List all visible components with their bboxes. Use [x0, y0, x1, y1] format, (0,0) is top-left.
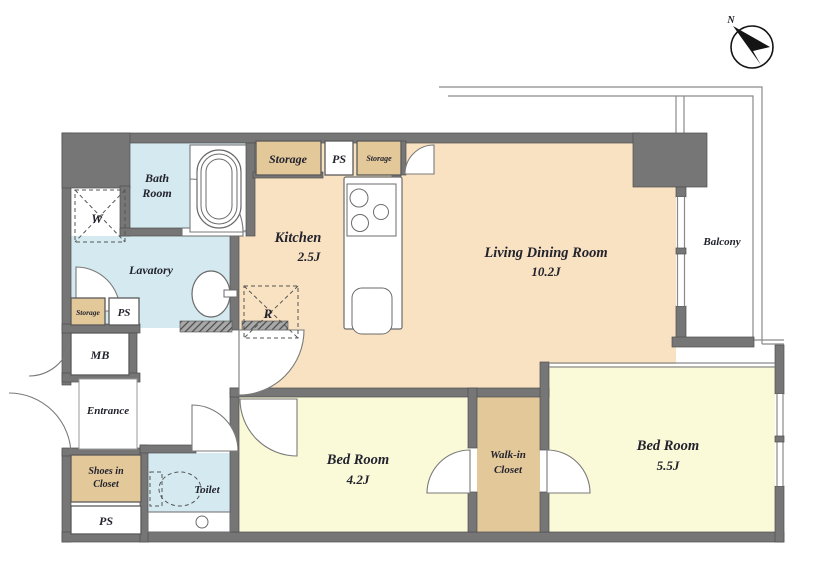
mb-label: MB — [90, 348, 110, 362]
fridge-label: R — [263, 306, 273, 321]
toilet-label: Toilet — [194, 484, 220, 496]
wall-east-below-pillar — [676, 187, 686, 197]
floor-plan: N Bath Room Lavatory W R Storage PS MB E… — [0, 0, 832, 574]
wall-bottom — [62, 532, 784, 542]
wall-walkin-left-upper — [468, 388, 477, 448]
bedroom-small-label: Bed Room — [326, 452, 389, 468]
balcony-label: Balcony — [702, 236, 740, 248]
floors — [71, 143, 775, 533]
entrance-door-arc-lower — [9, 393, 71, 455]
wall-right-upper — [775, 345, 784, 394]
entrance-label: Entrance — [86, 405, 129, 417]
north-arrow-icon — [733, 26, 770, 65]
bathtub-inner — [206, 159, 232, 219]
bedroom-small-size-label: 4.2J — [346, 472, 370, 487]
wall-bedroom-small-left — [230, 388, 239, 532]
wall-bath-kitchen — [246, 143, 255, 236]
storage-top-label: Storage — [269, 152, 308, 166]
toilet-counter — [148, 512, 230, 532]
ps-side-label: PS — [118, 307, 131, 319]
wall-walkin-right-lower — [540, 492, 549, 532]
wall-right-lower — [775, 486, 784, 542]
floor-plan-canvas: N Bath Room Lavatory W R Storage PS MB E… — [0, 0, 832, 574]
ps-top-label: PS — [332, 152, 346, 166]
wall-bath-bottom — [120, 228, 182, 236]
wall-toilet-top — [140, 445, 196, 453]
storage-side-label: Storage — [76, 308, 100, 317]
lavatory-step-hatch — [180, 321, 232, 332]
living-dining-label: Living Dining Room — [483, 245, 607, 261]
shoes-closet-label-2: Closet — [93, 479, 120, 490]
kitchen-size-label: 2.5J — [297, 249, 321, 264]
stove-burner-2 — [374, 205, 389, 220]
bath-room-label-2: Room — [141, 186, 171, 200]
kitchen-label: Kitchen — [274, 230, 322, 246]
lavatory-label: Lavatory — [128, 263, 174, 277]
lavatory-faucet — [224, 290, 237, 297]
walkin-closet-label-2: Closet — [494, 464, 523, 476]
living-dining-size-label: 10.2J — [531, 264, 561, 279]
wall-left-lower — [62, 450, 71, 542]
walkin-closet-label-1: Walk-in — [490, 449, 526, 461]
stove-burner-1 — [350, 189, 368, 207]
wall-lavatory-right — [230, 236, 239, 330]
compass: N — [726, 15, 773, 68]
bedroom-large-window-tick — [775, 436, 784, 442]
living-dining-kitchen-floor — [239, 143, 676, 388]
pillar-top-right — [633, 133, 707, 187]
bedroom-large-label: Bed Room — [636, 438, 699, 454]
ps-bottom-label: PS — [99, 514, 113, 528]
compass-north-label: N — [726, 15, 735, 26]
ldk-window-tick — [676, 248, 686, 254]
stove-burner-3 — [352, 215, 369, 232]
wall-corner-mass-topleft — [62, 133, 130, 188]
wall-walkin-left-lower — [468, 492, 477, 532]
wall-walkin-right-upper — [540, 362, 549, 450]
toilet-hand-basin — [196, 516, 208, 528]
wall-bedroom-small-top — [230, 388, 549, 397]
shoes-closet-label-1: Shoes in — [88, 466, 124, 477]
storage-top-small-label: Storage — [366, 154, 392, 163]
kitchen-sink — [352, 288, 392, 334]
bedroom-large-size-label: 5.5J — [657, 458, 680, 473]
washer-label: W — [91, 211, 104, 226]
wall-under-balcony — [672, 337, 754, 347]
wall-east-lower-stub — [676, 306, 686, 342]
bath-room-label-1: Bath — [144, 171, 169, 185]
